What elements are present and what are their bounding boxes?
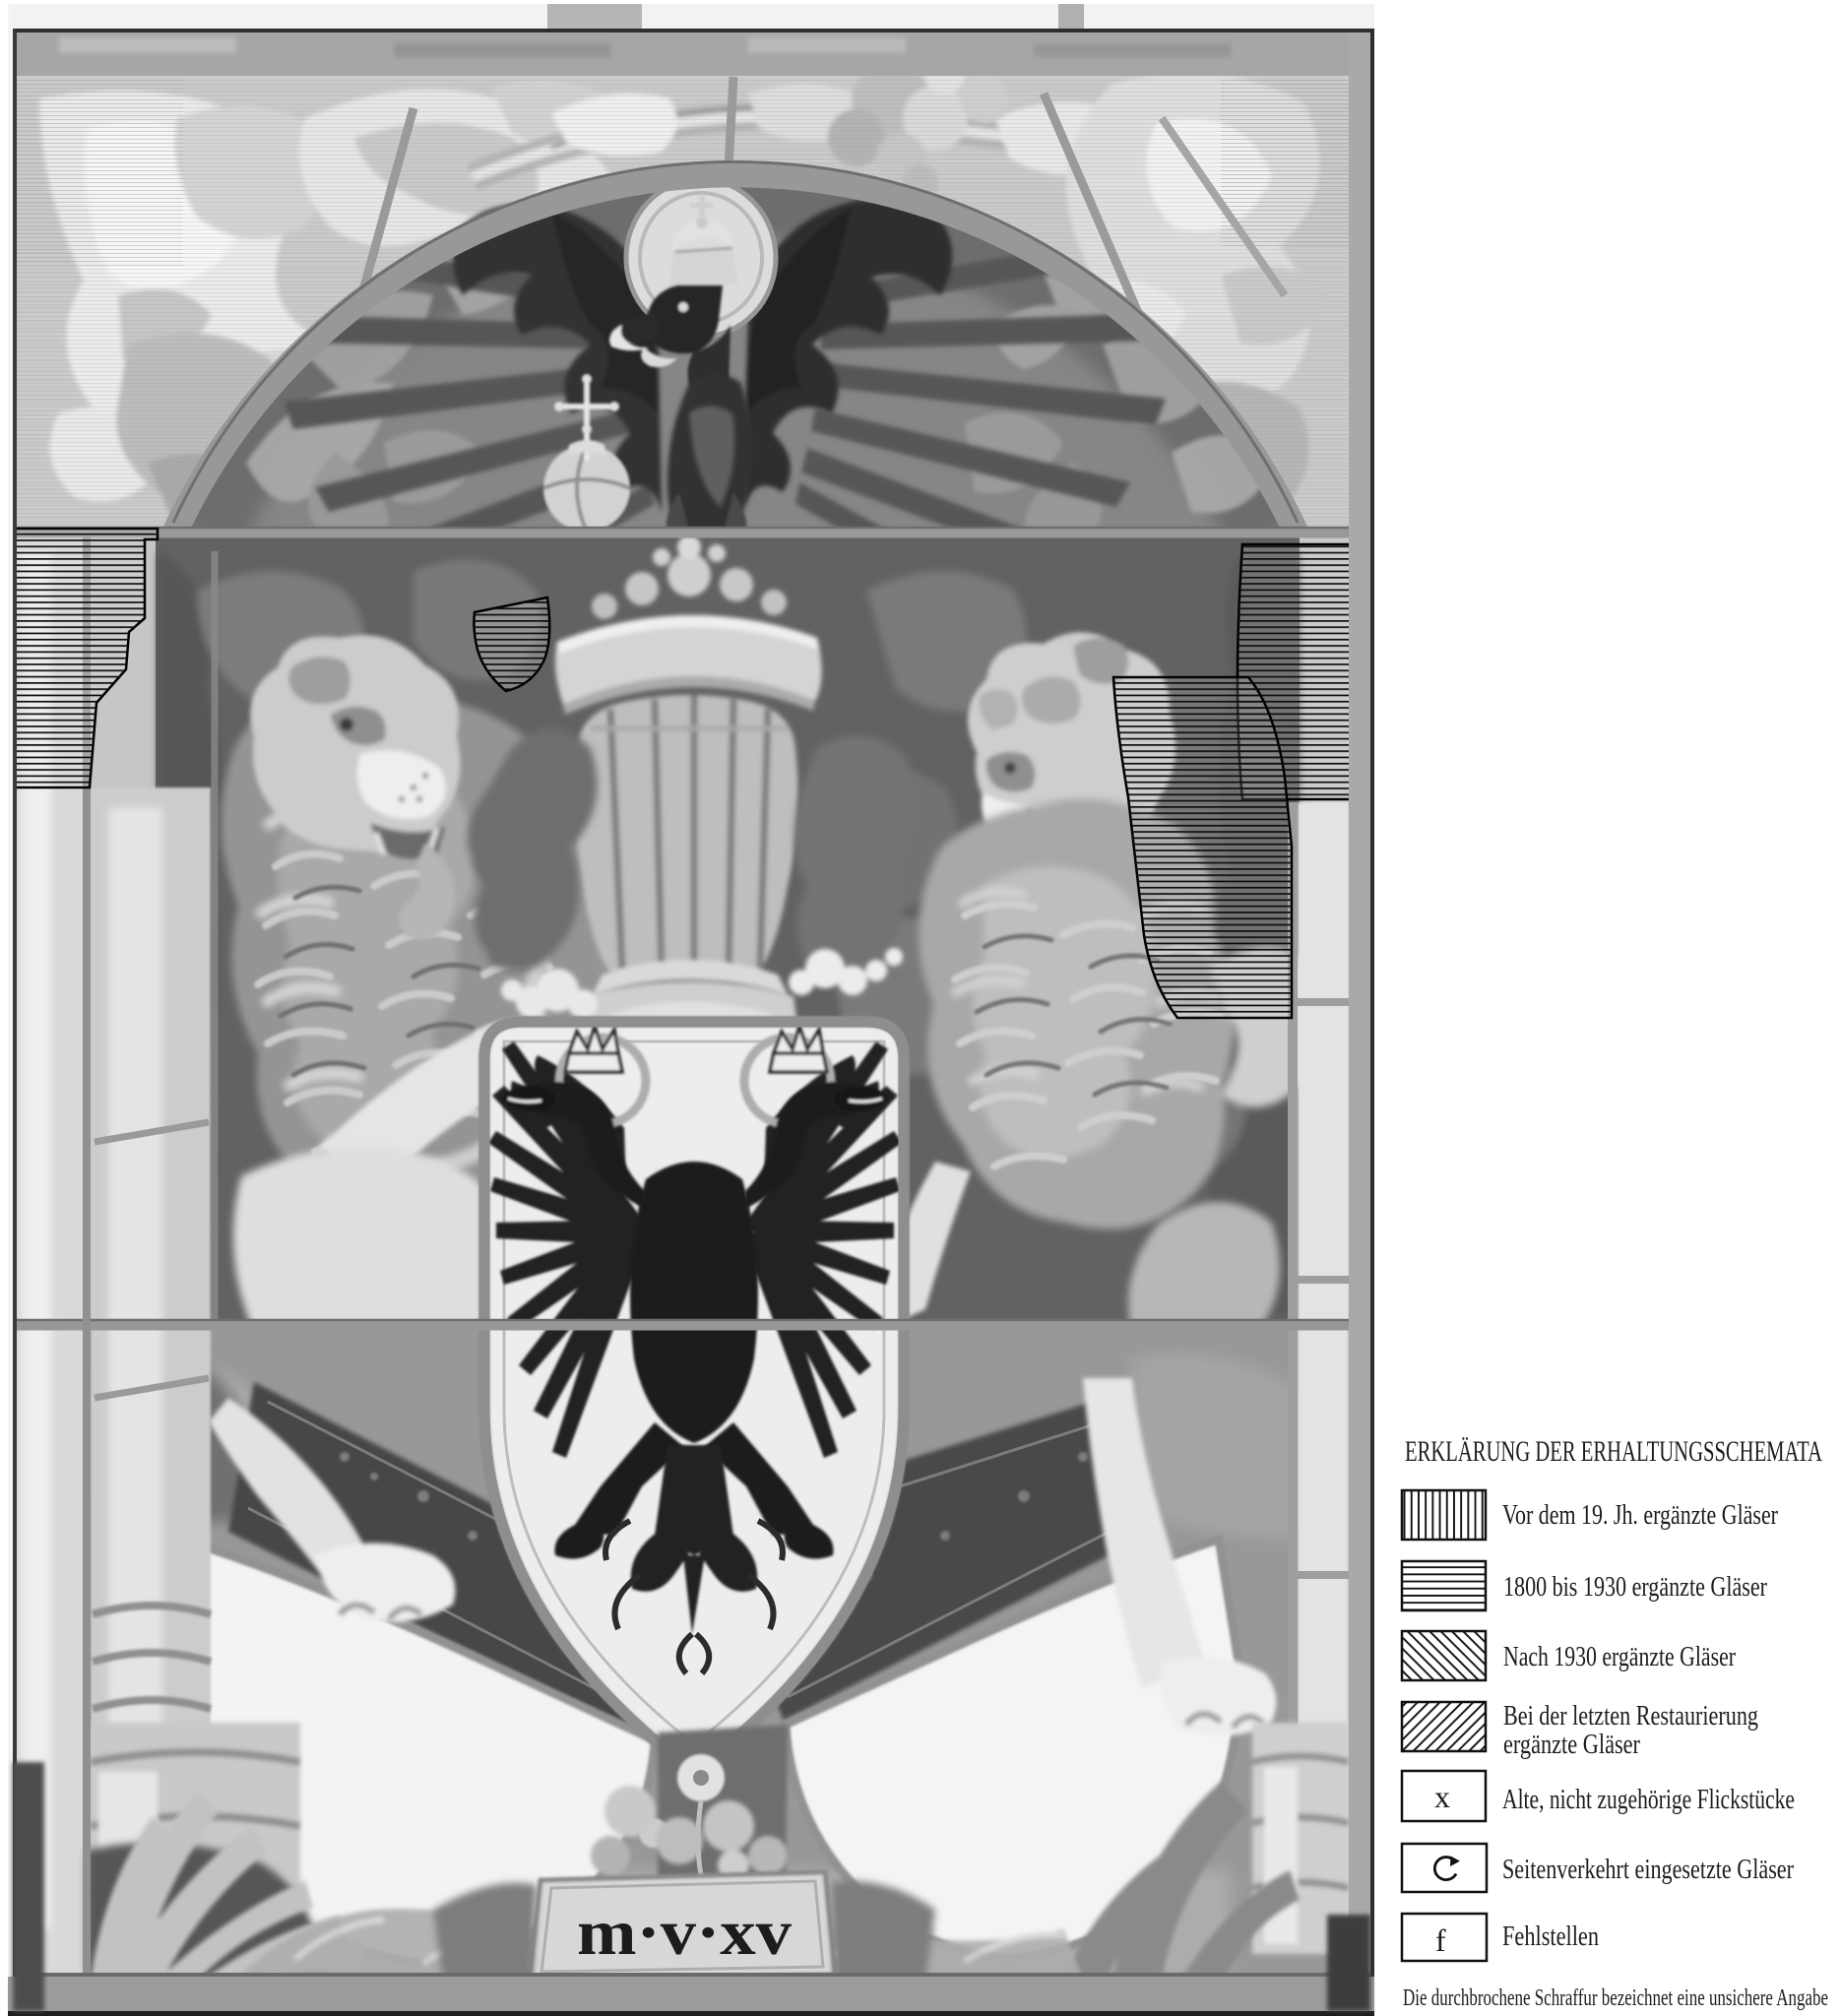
svg-text:Bei der letzten Restaurierung: Bei der letzten Restaurierung	[1503, 1700, 1758, 1732]
svg-text:ergänzte Gläser: ergänzte Gläser	[1503, 1729, 1640, 1760]
svg-text:Seitenverkehrt eingesetzte Glä: Seitenverkehrt eingesetzte Gläser	[1502, 1854, 1794, 1885]
svg-text:Alte, nicht zugehörige Flickst: Alte, nicht zugehörige Flickstücke	[1502, 1784, 1795, 1815]
svg-text:Die durchbrochene Schraffur be: Die durchbrochene Schraffur bezeichnet e…	[1403, 1985, 1828, 2011]
svg-text:Nach 1930 ergänzte Gläser: Nach 1930 ergänzte Gläser	[1503, 1641, 1736, 1672]
svg-text:Fehlstellen: Fehlstellen	[1502, 1921, 1599, 1952]
svg-text:x: x	[1434, 1779, 1450, 1814]
svg-text:m·v·xv: m·v·xv	[577, 1897, 792, 1969]
svg-text:ERKLÄRUNG DER ERHALTUNGSSCHEMA: ERKLÄRUNG DER ERHALTUNGSSCHEMATA	[1405, 1435, 1822, 1468]
svg-text:Vor dem 19. Jh. ergänzte Gläse: Vor dem 19. Jh. ergänzte Gläser	[1502, 1499, 1778, 1531]
svg-text:f: f	[1435, 1922, 1446, 1958]
svg-text:1800 bis 1930 ergänzte Gläser: 1800 bis 1930 ergänzte Gläser	[1503, 1571, 1767, 1603]
